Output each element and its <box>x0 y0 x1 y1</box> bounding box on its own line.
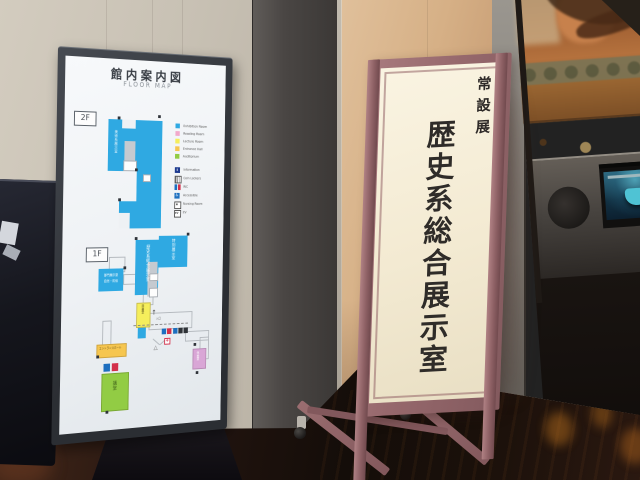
map-1f-special-name: 特別展示室 <box>171 239 175 260</box>
locker-icon <box>183 327 187 333</box>
legend-label: Exhibition Room <box>183 124 207 129</box>
floor-1f-label: 1F <box>86 247 109 262</box>
speaker-circle <box>546 185 591 230</box>
locker-icon <box>175 176 182 184</box>
legend-swatch-entrance <box>175 146 179 151</box>
information-icon-glyph: i <box>176 168 177 172</box>
legend-swatch-auditorium <box>175 154 179 159</box>
legend-label: Lecture Room <box>183 139 203 143</box>
display-case <box>599 160 640 229</box>
map-1f-auditorium-name: 講堂 <box>111 381 116 391</box>
case-light-bar <box>608 172 640 179</box>
triangle-icon: △ <box>153 344 157 351</box>
legend-swatch-reading <box>175 131 179 136</box>
map-2f-notch <box>122 120 136 129</box>
map-1f-lounge-name: 休憩室 <box>196 351 199 360</box>
map-marker <box>135 168 138 171</box>
nursing-icon <box>174 201 181 209</box>
facility-label: Coin Lockers <box>183 177 201 181</box>
nursing-icon-dot <box>176 203 178 205</box>
map-marker <box>118 116 121 119</box>
map-marker <box>135 237 138 240</box>
legend-label: Auditorium <box>183 155 199 159</box>
illuminated-artifact <box>625 187 640 206</box>
prehistoric-mural <box>514 0 640 124</box>
museum-photo: 館内案内図 FLOOR MAP 2F 美術系展示室 Exhibition Roo… <box>0 0 640 480</box>
map-marker <box>123 266 126 269</box>
legend-label: Reading Room <box>183 132 204 136</box>
facility-label: WC <box>183 185 188 189</box>
female-toilet-icon <box>167 328 171 334</box>
nursing-icon <box>178 328 182 334</box>
map-1f-small-room <box>138 328 146 339</box>
display-case-glass <box>603 168 640 220</box>
male-toilet-icon <box>103 364 110 372</box>
facility-label: Information <box>183 168 199 172</box>
map-1f-lounge <box>192 348 206 370</box>
floor-light-reflection <box>545 412 573 446</box>
map-2f-room-name: 美術系展示室 <box>113 130 117 154</box>
sign-category: 常設展 <box>471 75 494 141</box>
legend-swatch-lecture <box>175 139 179 144</box>
map-marker <box>196 371 199 374</box>
map-2f-cutout <box>119 213 130 229</box>
map-marker <box>106 411 109 414</box>
wheelchair-icon <box>173 328 177 334</box>
up-arrow-icon: ↑ <box>151 309 156 317</box>
map-marker <box>187 233 190 236</box>
map-1f-main-name: 歴史系総合展示室 <box>145 245 150 282</box>
facility-label: Accessible <box>183 194 198 198</box>
female-toilet-icon <box>178 184 181 190</box>
map-1f-auditorium <box>101 372 129 412</box>
exhibit-cabinet <box>526 149 640 283</box>
sign-paper: 常設展 歴史系総合展示室 <box>369 62 503 403</box>
legend-swatch-exhibition <box>175 123 179 128</box>
floor-2f-label: 2F <box>74 111 97 127</box>
floor-map-screen: 館内案内図 FLOOR MAP 2F 美術系展示室 Exhibition Roo… <box>59 56 226 435</box>
elevator-icon-glyph: EV <box>175 211 178 214</box>
map-marker <box>118 198 121 201</box>
male-toilet-icon <box>162 328 166 334</box>
map-1f-dept-name-2: 自然・民俗 <box>87 278 134 283</box>
first-aid-icon: + <box>164 338 170 345</box>
caster-wheel <box>294 427 306 439</box>
female-toilet-icon <box>112 363 119 371</box>
floor-map-display: 館内案内図 FLOOR MAP 2F 美術系展示室 Exhibition Roo… <box>51 46 232 445</box>
dark-pillar <box>252 0 341 462</box>
map-marker <box>194 343 197 346</box>
map-1f-ev-box <box>149 288 158 298</box>
wheelchair-icon-glyph: ♿ <box>175 193 179 198</box>
legend-label: Entrance Hall <box>183 147 203 151</box>
map-2f-ev-box <box>143 174 151 182</box>
facility-label: Nursing Room <box>183 202 203 206</box>
male-toilet-icon <box>175 184 178 190</box>
map-marker <box>158 115 161 118</box>
map-1f-facility-box <box>149 273 158 281</box>
map-marker <box>96 355 99 358</box>
facility-label: EV <box>183 211 187 215</box>
map-1f-library-name: 図書室 <box>141 304 144 313</box>
standing-sign: 常設展 歴史系総合展示室 <box>353 52 518 480</box>
